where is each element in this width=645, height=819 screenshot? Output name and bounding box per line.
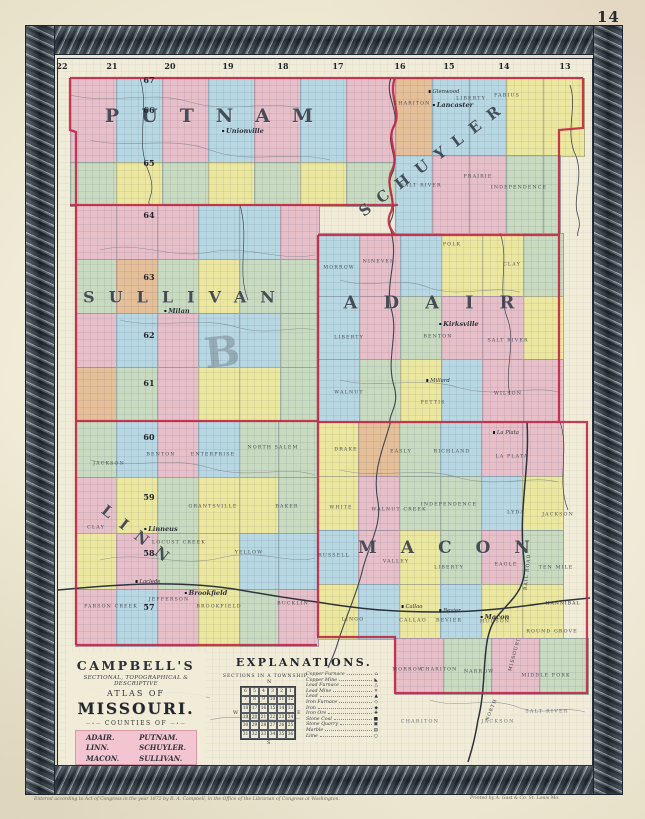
section-number: 12 (286, 696, 295, 705)
town-dot (164, 310, 166, 312)
compass-west: W (233, 710, 238, 716)
township-label: POLK (443, 243, 461, 248)
legend-leader (334, 719, 372, 720)
town-dot (439, 609, 441, 611)
range-number: 22 (56, 61, 67, 71)
section-number: 26 (277, 721, 286, 730)
sections-grid-row: 302928272625 (241, 721, 295, 730)
section-number: 4 (259, 687, 268, 696)
range-number: 13 (559, 61, 570, 71)
township-label: GRANTSVILLE (189, 505, 238, 510)
township-patch (317, 476, 360, 532)
township-label: PRAIRIE (464, 175, 493, 180)
town-dot (426, 379, 428, 381)
township-patch (443, 638, 493, 695)
township-label: BENTON (146, 453, 175, 458)
town-name: Glenwood (433, 89, 460, 95)
township-patch (481, 476, 524, 532)
braided-border-left (26, 26, 54, 794)
section-number: 18 (241, 704, 250, 713)
town-name: Kirksville (443, 320, 479, 328)
township-patch (358, 584, 401, 640)
section-number: 21 (259, 713, 268, 722)
range-number: 15 (443, 61, 454, 71)
township-label: CHARITON (421, 668, 458, 673)
township-patch (116, 367, 159, 423)
township-patch (400, 359, 443, 424)
legend-leader (320, 736, 372, 737)
township-patch (400, 233, 443, 298)
section-number: 33 (259, 730, 268, 739)
township-patch (116, 313, 159, 369)
township-label: MORROW (392, 668, 424, 673)
township-patch (254, 162, 302, 207)
section-number: 19 (241, 713, 250, 722)
range-number: 17 (332, 61, 343, 71)
section-number: 22 (268, 713, 277, 722)
legend-item-symbol: ▣ (374, 722, 378, 727)
township-patch (162, 162, 210, 207)
town-name: Bevier (443, 608, 460, 614)
sections-grid-row: 654321 (241, 687, 295, 696)
section-number: 23 (277, 713, 286, 722)
town-dot (481, 616, 483, 618)
legend-item-symbol: △ (374, 683, 378, 688)
legend-leader (347, 674, 373, 675)
township-label: NARROW (464, 670, 494, 675)
town-dot (185, 592, 187, 594)
legend-item-label: Iron Furnace (306, 700, 337, 705)
county-name-label: SULLIVAN (83, 288, 289, 307)
township-label: WALNUT CREEK (371, 508, 426, 513)
township-label: VALLEY (383, 560, 409, 565)
township-label: BUCKLIN (277, 602, 309, 607)
town-name: La Plata (497, 430, 519, 436)
township-patch (157, 313, 200, 369)
township-patch (280, 367, 320, 423)
township-patch (75, 313, 118, 369)
cartouche-county-name: PUTNAM. (139, 733, 186, 742)
sections-grid-row: 789101112 (241, 696, 295, 705)
legend-leader (320, 696, 373, 697)
township-patch (539, 638, 589, 695)
explanations-title: EXPLANATIONS. (236, 656, 372, 669)
section-number: 17 (250, 704, 259, 713)
cartouche-missouri: MISSOURI. (66, 699, 206, 718)
legend-leader (339, 680, 372, 681)
atlas-page: 14 (0, 0, 645, 819)
township-patch (278, 533, 319, 591)
section-number: 3 (268, 687, 277, 696)
township-patch (346, 78, 397, 164)
township-patch (506, 78, 545, 157)
township-patch (543, 78, 585, 157)
county-name-label: ADAIR (344, 293, 541, 314)
cartouche-descriptive: DESCRIPTIVE (66, 681, 206, 687)
section-number: 6 (241, 687, 250, 696)
section-number: 14 (277, 704, 286, 713)
township-label: JACKSON (542, 513, 574, 518)
township-patch (198, 421, 241, 479)
town-label: Callao (402, 604, 423, 610)
legend-leader (341, 685, 372, 686)
legend-item: Lead▲ (306, 694, 378, 699)
section-number: 25 (286, 721, 295, 730)
township-label: ROUND GROVE (526, 630, 578, 635)
township-patch (239, 477, 280, 535)
county-list-right: PUTNAM.SCHUYLER.SULLIVAN. (139, 733, 186, 763)
legend-item-symbol: ▲ (374, 694, 378, 699)
section-number: 11 (277, 696, 286, 705)
legend-item-symbol: ✚ (374, 711, 378, 716)
town-dot (222, 130, 224, 132)
township-patch (481, 584, 524, 640)
legend-item: Iron Furnace◇ (306, 700, 378, 705)
township-number: 60 (143, 432, 154, 442)
town-name: Lancaster (437, 101, 473, 109)
township-label: WALNUT (334, 391, 363, 396)
township-label: CALLAO (399, 619, 427, 624)
margin-township-label: SALT RIVER (525, 710, 568, 715)
legend-item: Lime○ (306, 734, 378, 739)
title-cartouche: CAMPBELL'S SECTIONAL, TOPOGRAPHICAL & DE… (66, 652, 206, 764)
town-label: Milan (164, 307, 189, 315)
sections-grid-row: 313233343536 (241, 730, 295, 739)
township-patch (239, 533, 280, 591)
township-label: MIDDLE FORK (521, 674, 570, 679)
section-number: 30 (241, 721, 250, 730)
township-patch (358, 476, 401, 532)
township-patch (198, 589, 241, 647)
township-label: WHITE (329, 506, 352, 511)
legend-items: Copper Furnace⌂Copper Mine◣Lead Furnace△… (306, 672, 378, 739)
township-patch (116, 421, 159, 479)
township-label: PARSON CREEK (84, 605, 138, 610)
township-label: YELLOW (235, 551, 264, 556)
section-number: 31 (241, 730, 250, 739)
cartouche-campbells: CAMPBELL'S (66, 658, 206, 673)
township-patch (239, 367, 282, 423)
township-label: BEVIER (436, 619, 462, 624)
legend-item-symbol: ○ (374, 734, 378, 739)
township-label: EAGLE (495, 563, 518, 568)
township-label: NORTH SALEM (247, 446, 298, 451)
township-label: MORROW (323, 266, 355, 271)
town-name: Macon (485, 613, 510, 621)
legend-item-label: Copper Mine (306, 678, 337, 683)
township-patch (506, 155, 545, 235)
township-patch (239, 205, 282, 261)
township-label: BROOKFIELD (196, 605, 241, 610)
railroad-label: HANNIBAL (546, 602, 581, 607)
cartouche-county-name: SCHUYLER. (139, 743, 186, 752)
legend-item-symbol: ◣ (374, 678, 378, 683)
legend-item-symbol: ⌂ (374, 672, 378, 677)
township-label: SALT RIVER (400, 184, 441, 189)
township-label: CHARITON (394, 102, 431, 107)
township-patch (399, 584, 442, 640)
legend-item: Copper Furnace⌂ (306, 672, 378, 677)
sections-grid-row: 181716151413 (241, 704, 295, 713)
section-number: 32 (250, 730, 259, 739)
legend-item-symbol: ◇ (374, 700, 378, 705)
legend-leader (318, 708, 372, 709)
range-number: 19 (222, 61, 233, 71)
town-label: Brookfield (185, 589, 227, 597)
cartouche-county-list-panel: ADAIR.LINN.MACON. PUTNAM.SCHUYLER.SULLIV… (75, 730, 197, 765)
sections-grid: 6543217891011121817161514131920212223243… (240, 686, 296, 740)
section-number: 29 (250, 721, 259, 730)
margin-township-label: CHARITON (401, 720, 440, 725)
legend-leader (325, 730, 371, 731)
township-label: JACKSON (93, 462, 125, 467)
township-label: WILSON (494, 392, 522, 397)
range-number: 21 (106, 61, 117, 71)
town-dot (402, 605, 404, 607)
township-label: LIBERTY (434, 566, 464, 571)
legend-item-label: Iron Ore (306, 711, 326, 716)
township-patch (359, 359, 402, 424)
township-label: JEFFERSON (149, 598, 190, 603)
braided-border-bottom (26, 766, 622, 794)
compass-north: N (267, 679, 271, 685)
township-label: LA PLATA (496, 455, 529, 460)
section-number: 35 (277, 730, 286, 739)
county-name-label: MACON (358, 538, 554, 558)
township-patch (208, 162, 256, 207)
town-label: Glenwood (429, 89, 460, 95)
township-patch (469, 155, 508, 235)
legend-item: Iron Ore✚ (306, 711, 378, 716)
township-label: LIBERTY (334, 336, 364, 341)
town-dot (136, 580, 138, 582)
township-patch (395, 638, 445, 695)
township-number: 63 (143, 272, 154, 282)
legend-leader (339, 702, 372, 703)
town-label: Unionville (222, 127, 264, 135)
township-number: 66 (143, 105, 154, 115)
township-patch (543, 155, 561, 235)
town-label: La Plata (493, 430, 519, 436)
town-name: Millard (430, 378, 450, 384)
county-name-label: PUTNAM (105, 105, 335, 127)
county-list-left: ADAIR.LINN.MACON. (86, 733, 119, 763)
range-number: 16 (394, 61, 405, 71)
section-number: 20 (250, 713, 259, 722)
township-patch (359, 233, 402, 298)
township-patch (75, 367, 118, 423)
page-number: 14 (597, 8, 620, 26)
legend-item: Marble▤ (306, 728, 378, 733)
town-dot (493, 431, 495, 433)
compass-south: S (267, 740, 270, 746)
section-number: 34 (268, 730, 277, 739)
section-number: 2 (277, 687, 286, 696)
town-dot (439, 323, 441, 325)
legend-item: Copper Mine◣ (306, 678, 378, 683)
township-patch (198, 205, 241, 261)
section-number: 5 (250, 687, 259, 696)
town-name: Callao (405, 604, 422, 610)
town-name: Laclede (139, 579, 160, 585)
township-patch (75, 205, 118, 261)
section-number: 16 (259, 704, 268, 713)
township-patch (300, 162, 348, 207)
range-number: 18 (277, 61, 288, 71)
cartouche-county-name: MACON. (86, 754, 119, 763)
township-label: LYDA (507, 511, 525, 516)
town-label: Laclede (136, 579, 161, 585)
braided-border-top (26, 26, 622, 54)
township-patch (280, 313, 320, 369)
legend-item: Stone Quarry▣ (306, 722, 378, 727)
sections-grid-row: 192021222324 (241, 713, 295, 722)
township-patch (116, 162, 164, 207)
cartouche-county-name: ADAIR. (86, 733, 119, 742)
township-label: LINGO (342, 618, 365, 623)
township-label: DRAKE (334, 448, 358, 453)
town-dot (433, 104, 435, 106)
township-patch (280, 205, 320, 261)
legend-item-label: Iron (306, 706, 316, 711)
township-number: 62 (143, 330, 154, 340)
town-label: Kirksville (439, 320, 478, 328)
town-label: Linneus (144, 525, 177, 533)
township-label: TEN MILE (539, 566, 574, 571)
township-label: LOCUST CREEK (152, 541, 206, 546)
town-name: Milan (168, 307, 189, 315)
township-label: EASLY (390, 450, 412, 455)
legend-leader (328, 713, 372, 714)
legend-item: Lead Furnace△ (306, 683, 378, 688)
compass-east: E (297, 710, 301, 716)
town-label: Macon (481, 613, 510, 621)
section-number: 15 (268, 704, 277, 713)
section-number: 13 (286, 704, 295, 713)
township-patch (522, 422, 564, 478)
ghost-letter: B (202, 326, 242, 378)
township-patch (157, 421, 200, 479)
township-patch (239, 313, 282, 369)
town-name: Unionville (226, 127, 264, 135)
township-label: SALT RIVER (487, 339, 528, 344)
legend-leader (333, 691, 372, 692)
section-number: 36 (286, 730, 295, 739)
section-number: 10 (268, 696, 277, 705)
legend-item-label: Copper Furnace (306, 672, 345, 677)
legend-item-label: Stone Coal (306, 717, 332, 722)
legend-item-label: Lead Furnace (306, 683, 339, 688)
township-label: CLAY (87, 526, 105, 531)
town-label: Lancaster (433, 101, 473, 109)
legend-item: Stone Coal■ (306, 717, 378, 722)
cartouche-atlas-of: ATLAS OF (66, 689, 206, 698)
township-patch (523, 233, 564, 298)
section-number: 9 (259, 696, 268, 705)
township-patch (157, 205, 200, 261)
township-patch (522, 476, 564, 532)
township-patch (239, 589, 280, 647)
township-patch (75, 421, 118, 479)
township-patch (278, 589, 319, 647)
township-label: BENTON (423, 335, 452, 340)
township-number: 58 (143, 548, 154, 558)
legend-leader (340, 724, 372, 725)
town-label: Bevier (439, 608, 460, 614)
sections-in-township-title: SECTIONS IN A TOWNSHIP. (223, 674, 309, 679)
township-label: ENTERPRISE (191, 453, 236, 458)
legend-item-label: Stone Quarry (306, 722, 338, 727)
range-number: 20 (164, 61, 175, 71)
township-label: FABIUS (494, 94, 520, 99)
legend-item-label: Lead (306, 694, 318, 699)
township-number: 59 (143, 492, 154, 502)
township-patch (441, 359, 484, 424)
township-label: INDEPENDENCE (491, 186, 547, 191)
cartouche-county-name: LINN. (86, 743, 119, 752)
section-number: 24 (286, 713, 295, 722)
township-label: CLAY (503, 263, 521, 268)
township-patch (75, 533, 118, 591)
legend-item-symbol: ▤ (374, 728, 378, 733)
legend-item-symbol: ■ (374, 717, 378, 722)
town-name: Brookfield (189, 589, 228, 597)
township-label: RICHLAND (434, 450, 471, 455)
township-label: INDEPENDENCE (421, 503, 477, 508)
township-patch (432, 155, 471, 235)
township-number: 57 (143, 602, 154, 612)
township-label: BAKER (275, 505, 298, 510)
section-number: 7 (241, 696, 250, 705)
braided-border-right (594, 26, 622, 794)
town-name: Linneus (148, 525, 177, 533)
township-label: NINEVEH (363, 260, 396, 265)
town-label: Millard (426, 378, 449, 384)
township-patch (523, 359, 564, 424)
township-number: 64 (143, 210, 154, 220)
printer-imprint: Printed by A. Gast & Co. St. Louis Mo. (470, 796, 559, 801)
section-number: 27 (268, 721, 277, 730)
legend-item-label: Marble (306, 728, 323, 733)
town-dot (429, 90, 431, 92)
township-number: 65 (143, 158, 154, 168)
township-patch (70, 162, 118, 207)
legend-item-symbol: ◆ (374, 706, 378, 711)
legend-item-label: Lime (306, 734, 318, 739)
township-patch (75, 589, 118, 647)
township-patch (157, 367, 200, 423)
cartouche-county-name: SULLIVAN. (139, 754, 186, 763)
township-patch (317, 584, 360, 640)
range-number: 14 (498, 61, 509, 71)
copyright-imprint: Entered according to Act of Congress in … (34, 797, 340, 802)
cartouche-counties-of: COUNTIES OF (66, 720, 206, 727)
section-number: 8 (250, 696, 259, 705)
explanations-panel: EXPLANATIONS. SECTIONS IN A TOWNSHIP. N … (232, 650, 382, 762)
town-dot (144, 528, 146, 530)
section-number: 28 (259, 721, 268, 730)
legend-item: Iron◆ (306, 706, 378, 711)
township-label: RUSSELL (318, 554, 350, 559)
section-number: 1 (286, 687, 295, 696)
township-label: PETTIS (421, 401, 446, 406)
township-number: 61 (143, 378, 154, 388)
township-number: 67 (143, 75, 154, 85)
